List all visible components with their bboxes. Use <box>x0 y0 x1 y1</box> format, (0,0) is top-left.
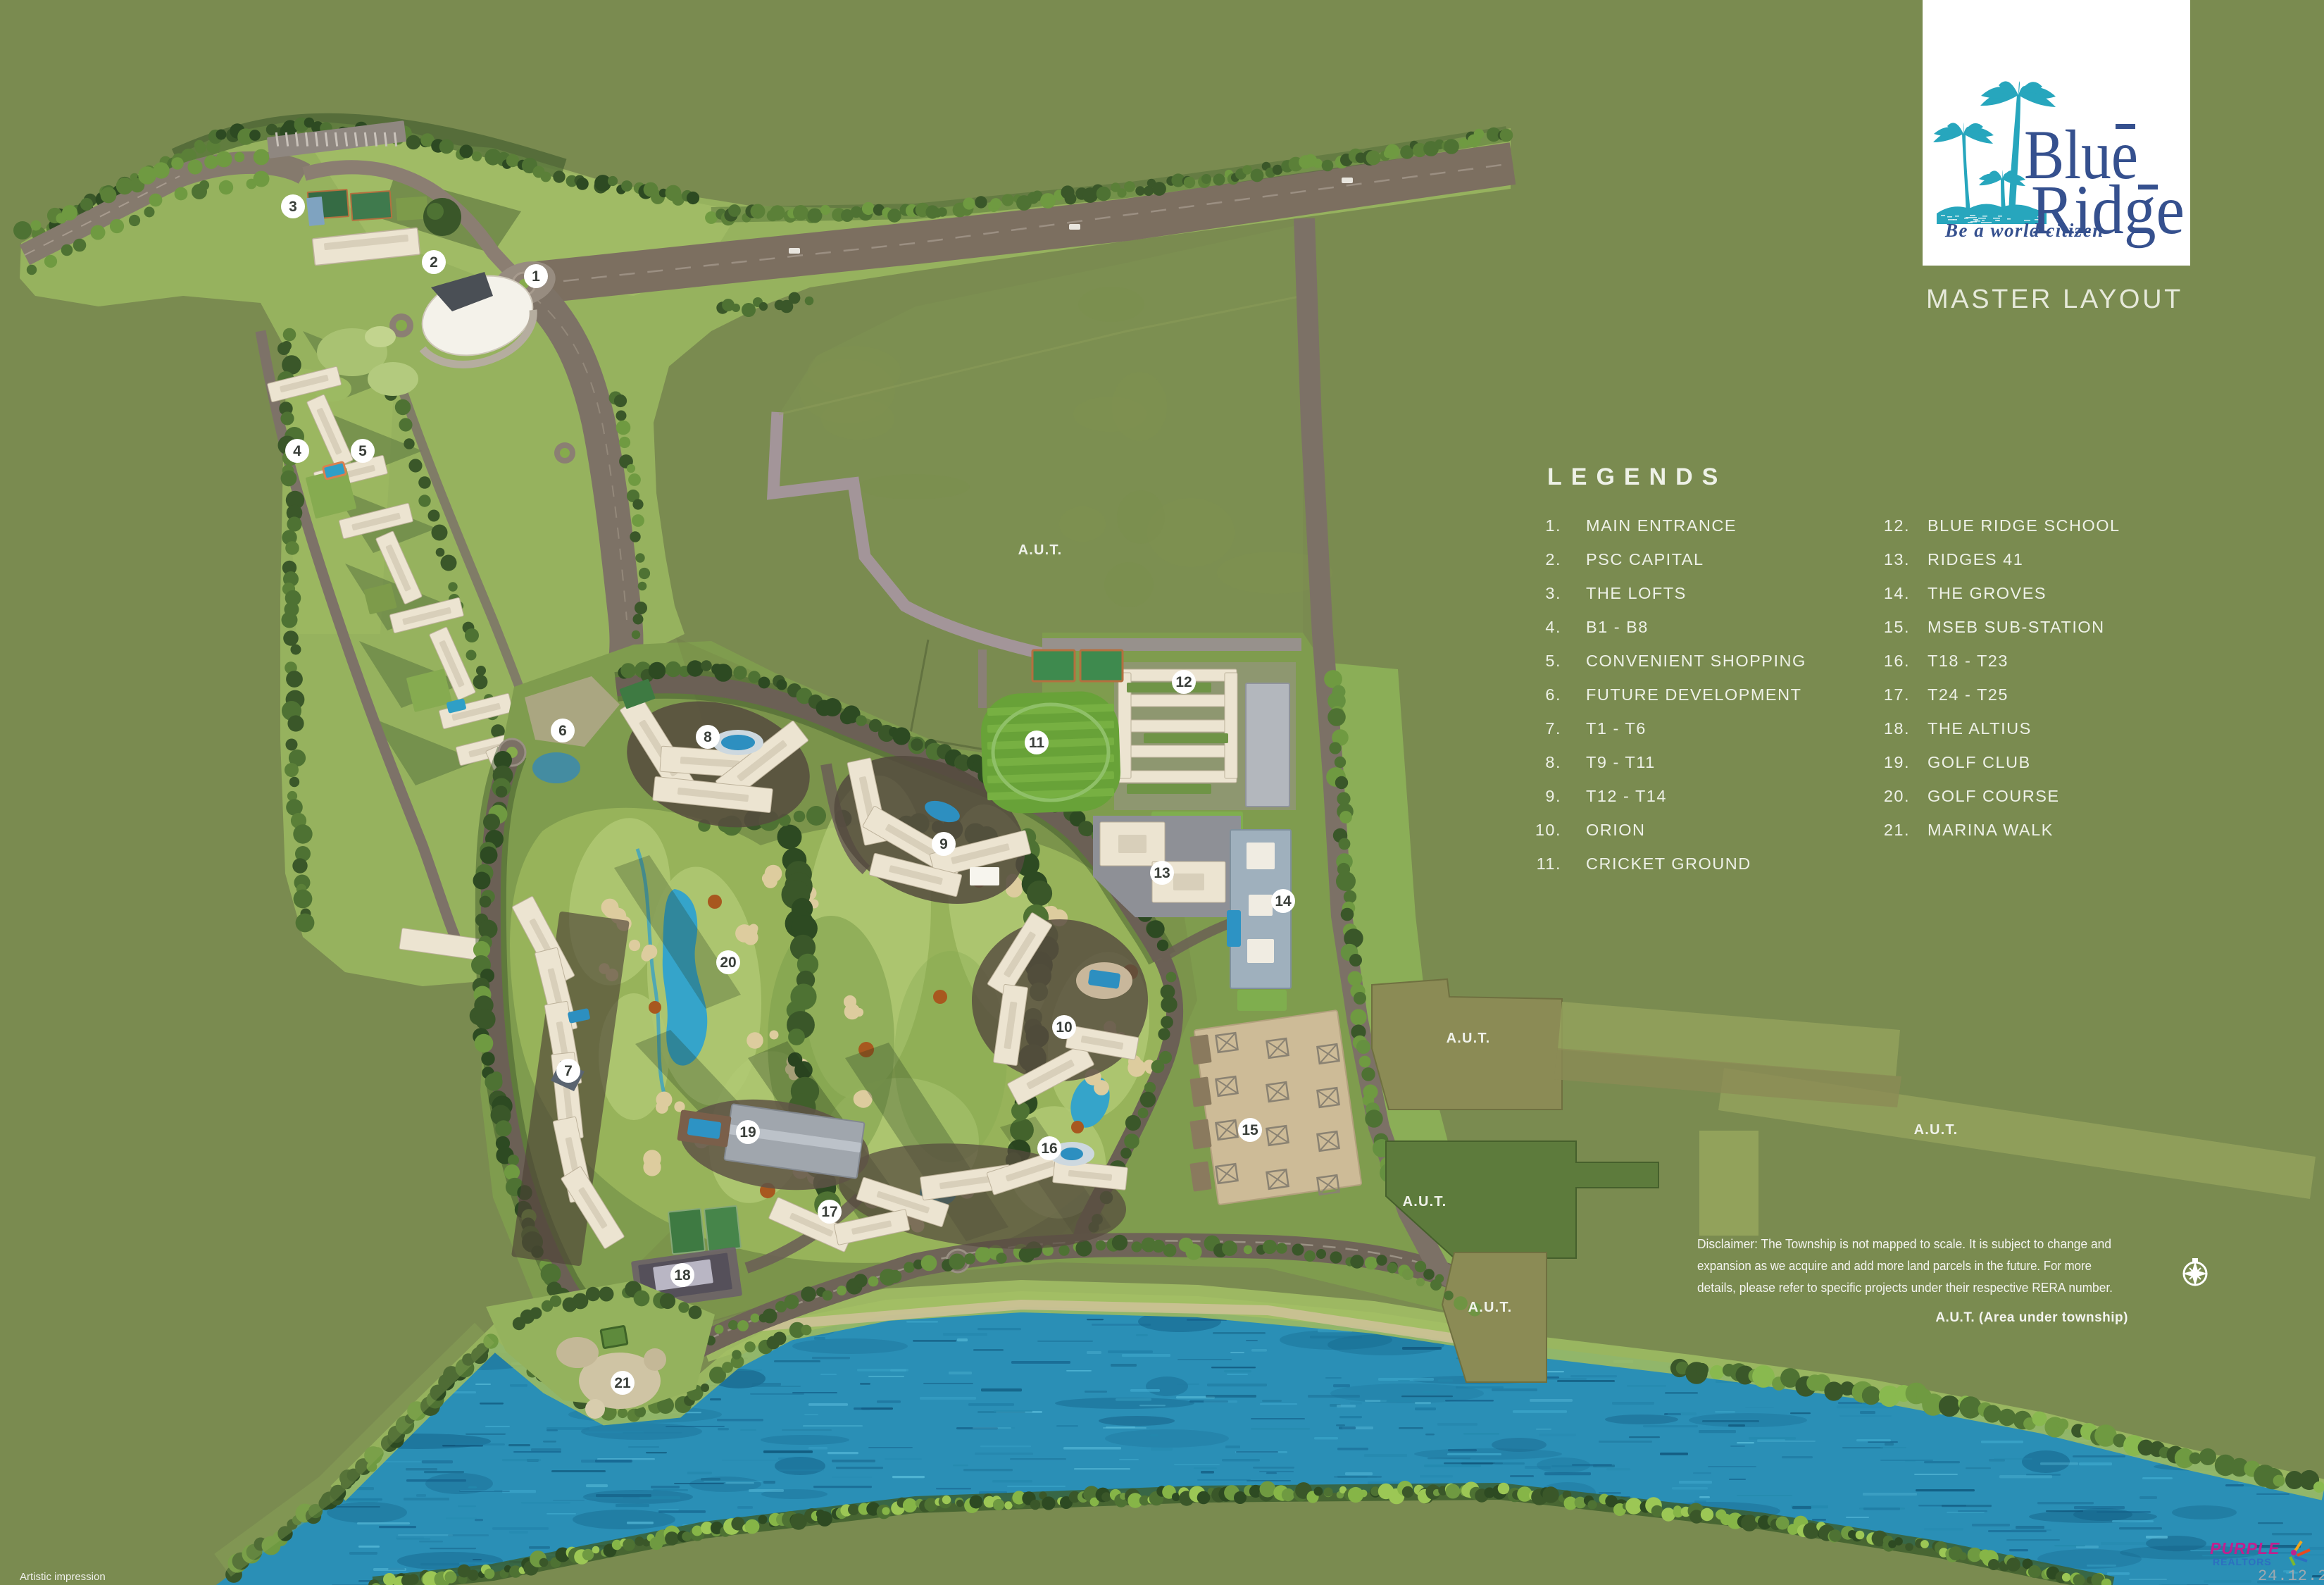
svg-text:A.U.T. (Area under township): A.U.T. (Area under township) <box>1935 1310 2128 1325</box>
svg-text:3: 3 <box>289 199 297 215</box>
svg-text:21: 21 <box>614 1375 631 1391</box>
svg-text:14.: 14. <box>1884 584 1910 602</box>
svg-text:BLUE RIDGE SCHOOL: BLUE RIDGE SCHOOL <box>1928 516 2120 535</box>
svg-text:MSEB SUB-STATION: MSEB SUB-STATION <box>1928 618 2105 636</box>
svg-text:CRICKET GROUND: CRICKET GROUND <box>1586 854 1751 873</box>
svg-text:1.: 1. <box>1545 516 1561 535</box>
svg-text:12.: 12. <box>1884 516 1910 535</box>
svg-text:8.: 8. <box>1545 753 1561 771</box>
svg-text:20: 20 <box>720 955 736 971</box>
svg-text:T24 - T25: T24 - T25 <box>1928 685 2008 704</box>
svg-text:4: 4 <box>293 443 301 459</box>
svg-text:10.: 10. <box>1535 821 1561 839</box>
svg-text:PURPLE: PURPLE <box>2210 1539 2280 1558</box>
svg-text:PSC CAPITAL: PSC CAPITAL <box>1586 550 1704 568</box>
svg-text:Disclaimer: The Township is no: Disclaimer: The Township is not mapped t… <box>1697 1237 2111 1251</box>
svg-text:THE LOFTS: THE LOFTS <box>1586 584 1687 602</box>
svg-text:11.: 11. <box>1537 854 1561 873</box>
svg-text:11: 11 <box>1029 735 1045 751</box>
svg-text:T18 - T23: T18 - T23 <box>1928 652 2008 670</box>
svg-text:20.: 20. <box>1884 787 1910 805</box>
svg-text:T9 - T11: T9 - T11 <box>1586 753 1656 771</box>
svg-text:GOLF COURSE: GOLF COURSE <box>1928 787 2060 805</box>
svg-text:B1 - B8: B1 - B8 <box>1586 618 1649 636</box>
svg-text:THE ALTIUS: THE ALTIUS <box>1928 719 2032 738</box>
svg-text:6.: 6. <box>1545 685 1561 704</box>
svg-text:A.U.T.: A.U.T. <box>1447 1031 1491 1046</box>
svg-text:4.: 4. <box>1545 618 1561 636</box>
svg-text:13: 13 <box>1154 865 1170 881</box>
svg-text:CONVENIENT SHOPPING: CONVENIENT SHOPPING <box>1586 652 1806 670</box>
svg-text:A.U.T.: A.U.T. <box>1018 542 1063 558</box>
svg-text:17: 17 <box>821 1204 837 1220</box>
svg-text:16.: 16. <box>1884 652 1910 670</box>
svg-text:5.: 5. <box>1545 652 1561 670</box>
svg-text:15.: 15. <box>1884 618 1910 636</box>
svg-text:24.12.2025: 24.12.2025 <box>2258 1567 2324 1585</box>
svg-text:6: 6 <box>558 723 567 739</box>
svg-text:18: 18 <box>674 1267 691 1283</box>
svg-text:2: 2 <box>430 254 438 271</box>
svg-text:Be a world citizen: Be a world citizen <box>1944 220 2104 241</box>
svg-text:16: 16 <box>1041 1140 1057 1157</box>
svg-text:expansion as we acquire and ad: expansion as we acquire and add more lan… <box>1697 1259 2092 1273</box>
svg-text:15: 15 <box>1242 1122 1258 1138</box>
svg-text:7.: 7. <box>1545 719 1561 738</box>
svg-text:19.: 19. <box>1884 753 1910 771</box>
svg-text:RIDGES 41: RIDGES 41 <box>1928 550 2023 568</box>
svg-text:MARINA WALK: MARINA WALK <box>1928 821 2054 839</box>
svg-text:MAIN ENTRANCE: MAIN ENTRANCE <box>1586 516 1737 535</box>
svg-text:9: 9 <box>939 836 948 852</box>
svg-text:14: 14 <box>1275 893 1292 909</box>
svg-text:GOLF CLUB: GOLF CLUB <box>1928 753 2031 771</box>
svg-text:2.: 2. <box>1545 550 1561 568</box>
svg-text:Artistic impression: Artistic impression <box>20 1571 106 1583</box>
svg-text:details, please refer to speci: details, please refer to specific projec… <box>1697 1281 2113 1295</box>
svg-text:3.: 3. <box>1545 584 1561 602</box>
svg-text:ORION: ORION <box>1586 821 1646 839</box>
svg-text:12: 12 <box>1175 674 1192 690</box>
svg-text:A.U.T.: A.U.T. <box>1468 1300 1513 1315</box>
svg-text:1: 1 <box>532 268 540 285</box>
svg-text:13.: 13. <box>1884 550 1910 568</box>
svg-text:A.U.T.: A.U.T. <box>1403 1194 1447 1210</box>
svg-text:FUTURE DEVELOPMENT: FUTURE DEVELOPMENT <box>1586 685 1801 704</box>
svg-text:THE GROVES: THE GROVES <box>1928 584 2047 602</box>
svg-text:9.: 9. <box>1545 787 1561 805</box>
svg-text:8: 8 <box>704 729 712 745</box>
svg-text:5: 5 <box>358 443 367 459</box>
svg-text:7: 7 <box>564 1063 573 1079</box>
svg-text:T1 - T6: T1 - T6 <box>1586 719 1647 738</box>
svg-text:A.U.T.: A.U.T. <box>1914 1122 1958 1138</box>
svg-text:REALTORS: REALTORS <box>2213 1556 2272 1567</box>
svg-text:18.: 18. <box>1884 719 1910 738</box>
svg-text:10: 10 <box>1056 1019 1072 1036</box>
svg-text:21.: 21. <box>1884 821 1910 839</box>
svg-text:19: 19 <box>739 1124 756 1140</box>
svg-text:MASTER LAYOUT: MASTER LAYOUT <box>1926 285 2183 314</box>
svg-text:LEGENDS: LEGENDS <box>1547 464 1727 490</box>
svg-text:T12 - T14: T12 - T14 <box>1586 787 1667 805</box>
svg-text:17.: 17. <box>1884 685 1910 704</box>
